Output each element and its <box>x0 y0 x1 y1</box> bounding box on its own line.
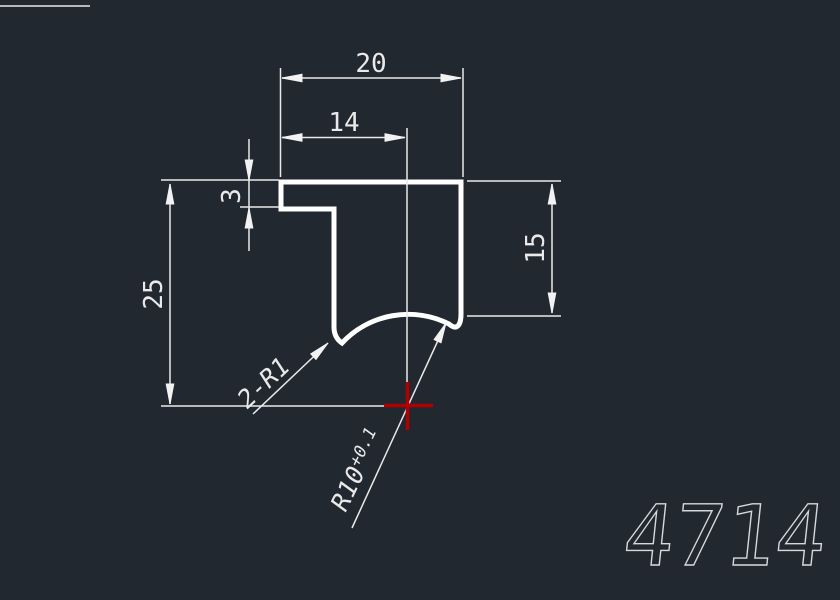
part-profile-outline[interactable] <box>281 182 461 343</box>
dim-label-15[interactable]: 15 <box>521 232 551 263</box>
arrow-down-icon <box>245 160 253 180</box>
dim-label-20[interactable]: 20 <box>355 49 386 79</box>
arrow-right-icon <box>385 134 405 142</box>
arrow-left-icon <box>282 74 302 82</box>
part-number: 4714 <box>619 487 832 585</box>
arrow-down-icon <box>166 384 174 404</box>
arrow-right-icon <box>441 74 461 82</box>
leader-arc-radius[interactable]: R10+0.1 <box>0 6 449 528</box>
arrow-left-icon <box>282 134 302 142</box>
dimension-right-height[interactable]: 15 <box>521 184 556 313</box>
cad-drawing-canvas[interactable]: 20 14 3 25 15 <box>0 0 840 600</box>
leader-fillet-radius[interactable]: 2-R1 <box>230 340 331 415</box>
dim-label-25[interactable]: 25 <box>139 278 169 309</box>
arrow-upright-icon <box>311 340 331 359</box>
arrow-up-icon <box>166 184 174 204</box>
dim-label-3[interactable]: 3 <box>217 188 247 204</box>
dimension-inner-width[interactable]: 14 <box>282 108 405 141</box>
arrow-up-icon <box>548 184 556 204</box>
arrow-down-icon <box>548 293 556 313</box>
cad-drawing: 20 14 3 25 15 <box>0 0 840 600</box>
dim-label-14[interactable]: 14 <box>328 108 359 138</box>
dimension-top-width[interactable]: 20 <box>282 49 461 82</box>
dimension-lip-thickness[interactable]: 3 <box>217 139 253 251</box>
arc-center-mark-icon[interactable] <box>384 382 433 430</box>
dimension-left-height[interactable]: 25 <box>139 184 174 404</box>
extension-lines <box>161 68 561 406</box>
arrow-up-icon <box>245 208 253 228</box>
